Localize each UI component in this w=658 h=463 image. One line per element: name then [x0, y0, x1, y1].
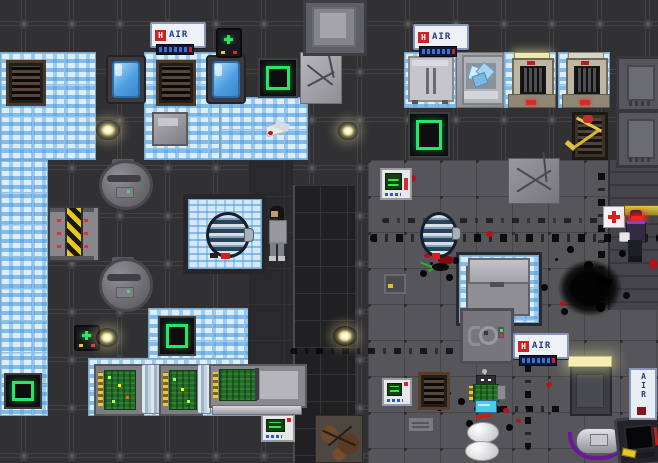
air-sign-vertical-label: AIR — [633, 372, 653, 399]
robot-arm — [497, 385, 506, 400]
yellow-tool[interactable] — [565, 140, 577, 151]
gravity-sphere-1[interactable] — [206, 210, 252, 260]
air-alarm-device-top[interactable] — [216, 28, 242, 58]
sleeper-pod-1[interactable] — [106, 55, 146, 104]
vent-grille-2[interactable] — [156, 60, 196, 106]
wire-debris-green[interactable] — [420, 260, 450, 274]
light-flare-3 — [96, 328, 118, 347]
vault-door[interactable] — [460, 308, 514, 364]
floor-circuit-mid-top2[interactable] — [220, 97, 308, 160]
sphere-nub — [452, 227, 461, 240]
air-sign-label: AIR — [169, 30, 188, 40]
air-alarm-bar-2[interactable] — [419, 46, 457, 57]
air-sign-label: AIR — [432, 32, 451, 42]
blood-splatter — [546, 382, 552, 387]
air-alarm-bar-3[interactable] — [519, 355, 557, 366]
light-flare-2 — [338, 122, 358, 140]
white-debris-item[interactable] — [266, 120, 292, 138]
sphere-red-base — [432, 253, 440, 259]
round-tank-2[interactable] — [98, 258, 150, 310]
eyes — [631, 216, 642, 220]
sphere-red-base — [221, 253, 230, 259]
air-sign-badge: H — [155, 30, 166, 41]
game-viewport: H AIR H AIR H AIR AIR — [0, 0, 658, 463]
cracked-tile-top — [300, 52, 342, 104]
air-sign-badge: H — [418, 32, 429, 43]
large-airlock-door[interactable] — [303, 0, 367, 56]
vent-grille-brown[interactable] — [418, 372, 450, 410]
console-screen — [623, 424, 654, 452]
hostile-red-eyes[interactable] — [618, 208, 652, 266]
jumpsuit-torso — [269, 220, 287, 244]
wall-terminal-3[interactable] — [382, 378, 412, 406]
crate-lid — [468, 258, 530, 284]
scorch-trail-main — [370, 234, 658, 242]
wall-locker-1[interactable] — [616, 56, 658, 112]
teleporter-pad-mid[interactable] — [158, 316, 196, 356]
wall-locker-2[interactable] — [616, 110, 658, 168]
vent-grille-1[interactable] — [6, 60, 46, 106]
cryo-chamber-1[interactable] — [508, 52, 554, 108]
face — [271, 211, 278, 217]
server-rack-1[interactable] — [94, 364, 144, 416]
cracked-tile-right — [508, 158, 560, 204]
glass-pillar-1[interactable] — [141, 364, 161, 414]
ice-machine[interactable] — [460, 55, 504, 105]
light-flare-1 — [96, 120, 120, 140]
gravity-sphere-2[interactable] — [420, 210, 458, 260]
crew-member-gray[interactable] — [266, 206, 288, 262]
open-mainframe[interactable] — [209, 364, 307, 408]
teleporter-pad-top[interactable] — [258, 58, 298, 98]
dark-console[interactable] — [614, 414, 658, 463]
blood-splatter — [560, 301, 566, 306]
light-flare-4 — [333, 326, 357, 346]
mainframe-rail — [212, 405, 302, 415]
hazard-stripes — [65, 208, 83, 256]
air-sign-vertical-badge — [637, 407, 646, 415]
blood-splatter — [516, 419, 521, 423]
vent-with-wires[interactable] — [572, 112, 608, 160]
red-wire — [654, 427, 658, 445]
sleeper-pod-2[interactable] — [206, 55, 246, 104]
vault-wheel[interactable] — [479, 326, 498, 345]
air-alarm-bar-1[interactable] — [156, 44, 194, 55]
blood-splatter — [486, 231, 493, 237]
white-egg-1[interactable] — [467, 422, 499, 443]
round-tank-1[interactable] — [98, 160, 150, 206]
air-sign-vertical[interactable]: AIR — [629, 368, 657, 420]
blast-door-hazard[interactable] — [48, 206, 100, 262]
white-egg-2[interactable] — [465, 441, 499, 461]
teleporter-pad-left-bottom[interactable] — [4, 373, 42, 409]
wall-terminal-2[interactable] — [261, 414, 295, 442]
small-vent-item[interactable] — [408, 417, 434, 432]
sphere-nub — [244, 228, 254, 242]
fridge-machine[interactable] — [406, 54, 454, 104]
red-wire-coil[interactable] — [583, 115, 593, 123]
cryo-chamber-2[interactable] — [562, 52, 608, 108]
teleporter-pad-right-top[interactable] — [408, 112, 450, 158]
robot-screen — [475, 400, 497, 413]
air-sign-badge: H — [518, 341, 529, 352]
scorch-trail-upper — [382, 218, 622, 223]
machine-frame-item[interactable] — [384, 274, 406, 294]
wall-terminal-1[interactable] — [380, 168, 412, 200]
light-bar — [568, 356, 612, 367]
air-sign-label: AIR — [532, 341, 551, 351]
rusty-tile — [315, 415, 363, 463]
robot-frame[interactable] — [464, 370, 506, 414]
soot-dots-a — [555, 258, 558, 261]
tall-lit-machine[interactable] — [566, 356, 612, 414]
gray-box-item[interactable] — [152, 112, 188, 146]
